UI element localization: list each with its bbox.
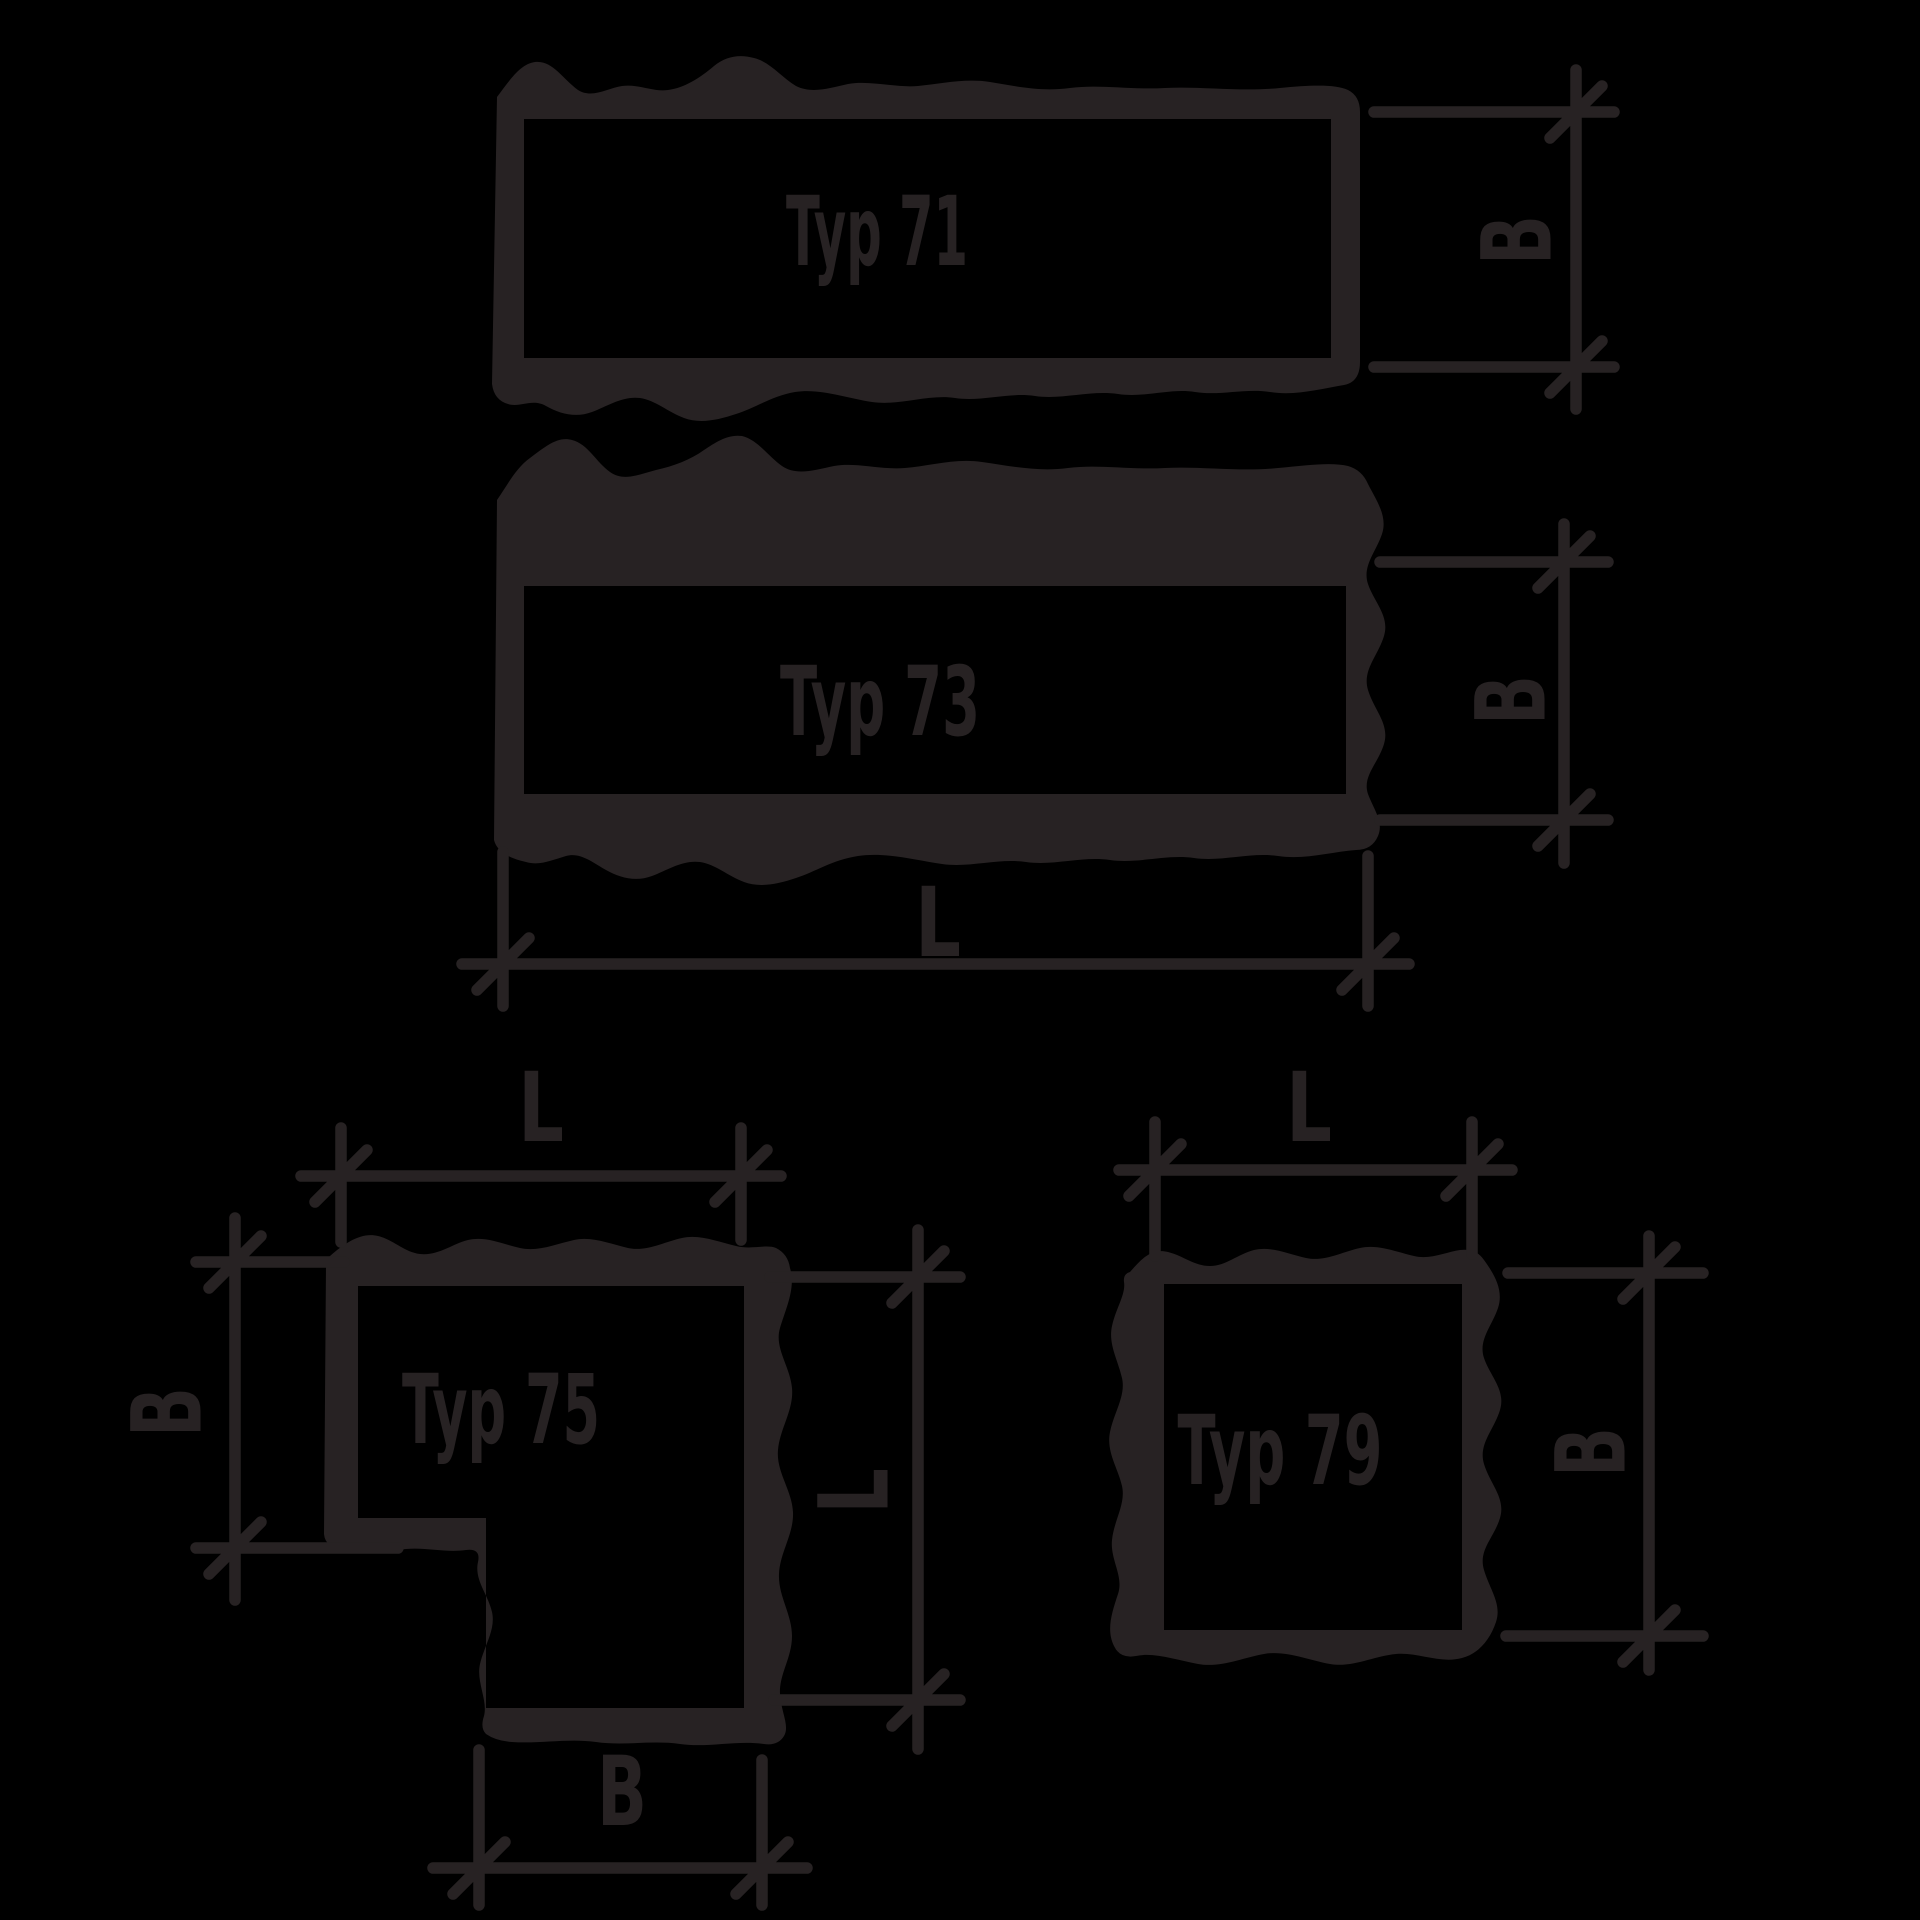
typ71-label: Typ 71 <box>786 176 968 288</box>
typ79-dim-l-top-label: L <box>1286 1052 1332 1164</box>
typ73-dim-l-label: L <box>915 867 961 979</box>
typ75-dim-b-left-label: B <box>112 1387 224 1437</box>
technical-diagram: Typ 71 Typ 73 Typ 75 Typ 79 B B L L B L … <box>0 0 1920 1920</box>
typ71-dim-b-label: B <box>1462 215 1574 265</box>
typ75-label: Typ 75 <box>402 1354 600 1466</box>
typ73-label: Typ 73 <box>780 646 980 758</box>
typ75-dim-b-bottom-label: B <box>597 1736 647 1848</box>
typ75-dim-l-right-label: L <box>799 1468 911 1514</box>
typ79-label: Typ 79 <box>1178 1395 1383 1507</box>
typ79-dim-b-right-label: B <box>1536 1427 1648 1477</box>
typ73-dim-b-label: B <box>1456 675 1568 725</box>
typ75-dim-l-top-label: L <box>518 1052 564 1164</box>
